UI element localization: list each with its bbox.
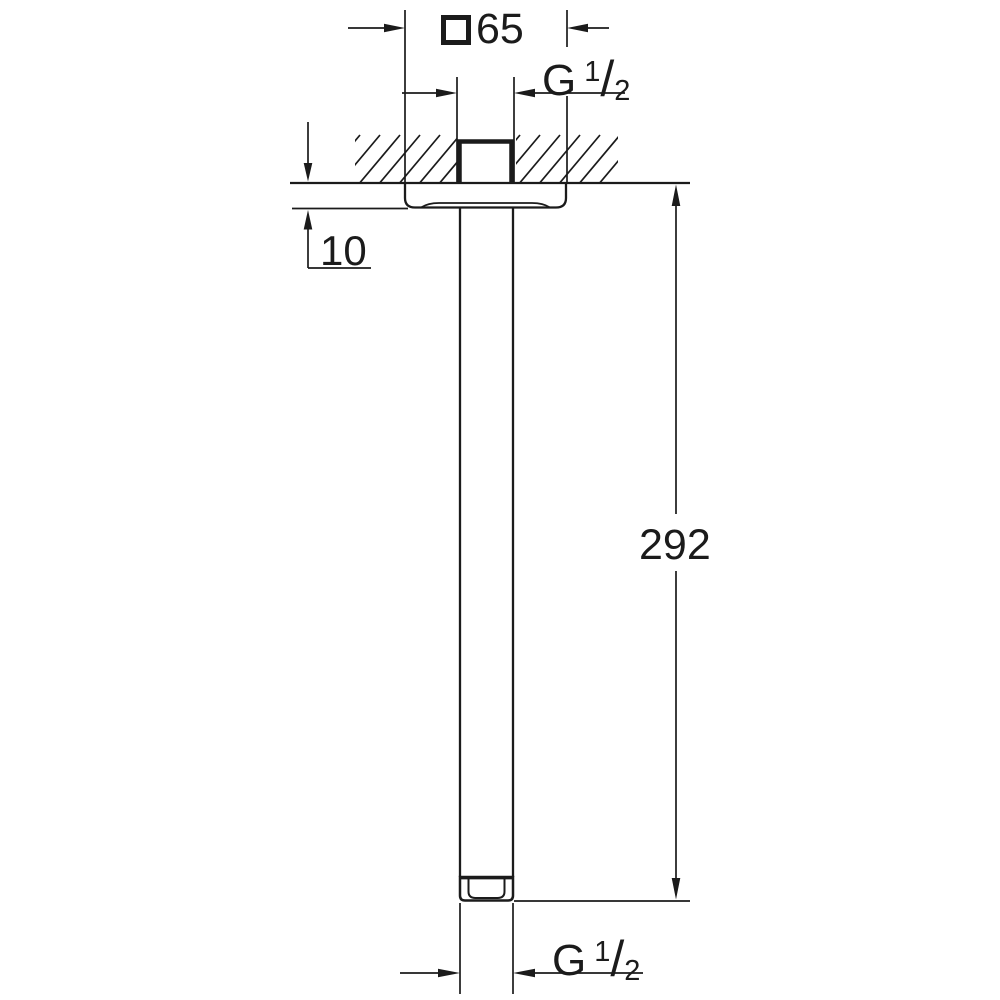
arm-length-dimension-label: 292: [639, 524, 711, 567]
outlet-nut: [459, 877, 514, 901]
flange-width-value: 65: [476, 8, 524, 51]
square-section-symbol-icon: [441, 15, 471, 45]
mount-fitting: [460, 142, 512, 185]
thread-bottom-base: G: [552, 936, 586, 985]
thread-top-denominator: 2: [614, 77, 630, 106]
drawing-linework: [0, 0, 1000, 1000]
thread-bottom-denominator: 2: [624, 957, 640, 986]
shower-arm-pipe: [460, 208, 513, 878]
flange: [405, 183, 566, 208]
thread-top-numerator: 1: [584, 58, 600, 87]
shower-arm-dimension-drawing: 65 G1/2 10 292 G1/2: [0, 0, 1000, 1000]
thread-size-top-label: G1/2: [542, 53, 630, 103]
flange-width-dimension-label: 65: [441, 8, 524, 51]
flange-thickness-dimension-label: 10: [320, 230, 367, 272]
thread-bottom-slash: /: [610, 934, 624, 984]
thread-top-slash: /: [600, 54, 614, 104]
thread-bottom-numerator: 1: [594, 938, 610, 967]
thread-top-base: G: [542, 56, 576, 105]
thread-size-bottom-label: G1/2: [552, 933, 640, 983]
